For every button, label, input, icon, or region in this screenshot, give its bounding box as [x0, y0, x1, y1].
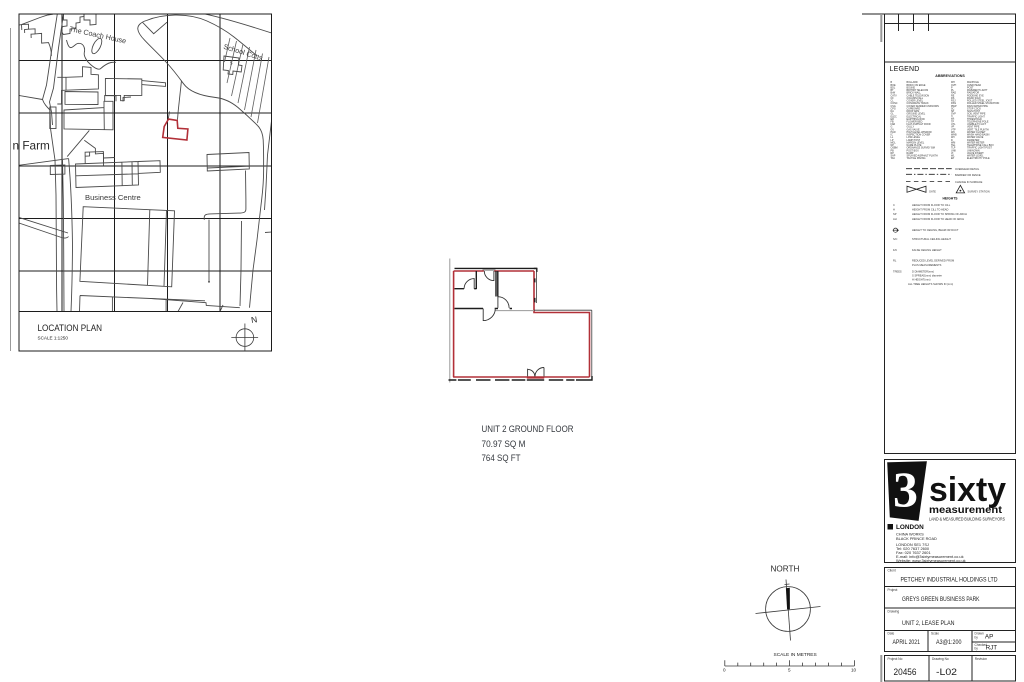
svg-text:GREYS GREEN BUSINESS PARK: GREYS GREEN BUSINESS PARK	[902, 596, 980, 603]
svg-text:by: by	[975, 635, 979, 639]
svg-text:HEIGHT FROM FLOOR TO SPRING OF: HEIGHT FROM FLOOR TO SPRING OF ARCH	[912, 212, 967, 216]
svg-text:C: C	[893, 203, 895, 207]
svg-text:BLACK PRINCE ROAD: BLACK PRINCE ROAD	[896, 536, 937, 541]
svg-text:ALL TREE HEIGHTS SHOWN IN (mm): ALL TREE HEIGHTS SHOWN IN (mm)	[908, 282, 953, 286]
svg-text:Drawing No: Drawing No	[932, 657, 949, 661]
svg-text:TACTILE PAVING: TACTILE PAVING	[907, 157, 926, 160]
svg-text:LEGEND: LEGEND	[890, 66, 920, 73]
svg-text:A3@1:200: A3@1:200	[936, 639, 962, 646]
svg-text:by: by	[975, 646, 979, 650]
svg-text:Drawing: Drawing	[888, 610, 900, 614]
svg-text:STRUCTURAL CEILING HEIGHT: STRUCTURAL CEILING HEIGHT	[912, 237, 951, 241]
svg-text:NORTH: NORTH	[771, 565, 800, 574]
svg-text:SCALE 1:1250: SCALE 1:1250	[38, 336, 69, 341]
svg-text:HEIGHTS: HEIGHTS	[942, 196, 958, 200]
svg-text:measurement: measurement	[929, 505, 1003, 516]
svg-text:LONDON: LONDON	[896, 524, 924, 531]
svg-text:Project No: Project No	[888, 657, 903, 661]
svg-text:5: 5	[788, 668, 791, 673]
svg-text:PLUS MEASUREMENTS: PLUS MEASUREMENTS	[912, 263, 942, 267]
svg-text:3: 3	[893, 461, 918, 517]
svg-text:Scale: Scale	[931, 632, 939, 636]
svg-text:20456: 20456	[894, 667, 917, 678]
svg-text:TAC: TAC	[891, 157, 896, 160]
svg-text:RJT: RJT	[986, 645, 998, 652]
svg-text:LAND & MEASURED BUILDING SURVE: LAND & MEASURED BUILDING SURVEYORS	[929, 516, 1005, 521]
svg-text:D DIAMETER(mm): D DIAMETER(mm)	[912, 269, 934, 273]
svg-text:HEIGHT FROM FLOOR TO CILL: HEIGHT FROM FLOOR TO CILL	[912, 203, 951, 207]
svg-text:BARRIER OR FENCE: BARRIER OR FENCE	[955, 173, 981, 177]
svg-text:764 SQ FT: 764 SQ FT	[482, 453, 521, 464]
svg-text:ELECTRICITY POLE: ELECTRICITY POLE	[967, 157, 990, 160]
svg-text:Website: www.3sixtymeasurement: Website: www.3sixtymeasurement.co.uk	[896, 558, 966, 563]
svg-text:LOCATION PLAN: LOCATION PLAN	[38, 323, 103, 334]
svg-text:ABBREVIATIONS: ABBREVIATIONS	[935, 74, 965, 78]
svg-text:PETCHEY INDUSTRIAL HOLDINGS LT: PETCHEY INDUSTRIAL HOLDINGS LTD	[901, 576, 998, 583]
svg-text:-L02: -L02	[936, 667, 957, 678]
svg-text:SP: SP	[893, 212, 897, 216]
svg-text:F/C: F/C	[893, 248, 897, 252]
svg-text:AH: AH	[893, 217, 897, 221]
svg-text:AP: AP	[985, 634, 993, 641]
svg-text:HEIGHT FROM CILL TO HEAD: HEIGHT FROM CILL TO HEAD	[912, 208, 948, 212]
svg-text:Client: Client	[888, 569, 896, 573]
svg-text:CHANGE IN SURFACE: CHANGE IN SURFACE	[955, 180, 983, 184]
svg-text:Date: Date	[888, 632, 895, 636]
svg-text:H: H	[893, 208, 895, 212]
svg-text:REDUCED LEVEL DERIVED FROM: REDUCED LEVEL DERIVED FROM	[912, 258, 954, 262]
svg-text:Revision: Revision	[975, 657, 987, 661]
svg-text:EP: EP	[951, 157, 955, 160]
svg-text:0: 0	[723, 668, 726, 673]
svg-text:HEIGHT FROM FLOOR TO HEAD OF A: HEIGHT FROM FLOOR TO HEAD OF ARCH	[912, 217, 964, 221]
svg-text:SURVEY STATION: SURVEY STATION	[968, 190, 990, 194]
svg-text:TREES: TREES	[893, 269, 902, 273]
svg-text:FALSE CEILING HEIGHT: FALSE CEILING HEIGHT	[912, 248, 942, 252]
svg-text:RL: RL	[893, 258, 897, 262]
svg-text:GATE: GATE	[929, 190, 936, 194]
svg-text:S/C: S/C	[893, 237, 897, 241]
svg-text:SCALE IN METRES: SCALE IN METRES	[774, 652, 817, 658]
svg-text:Project: Project	[888, 588, 898, 592]
svg-text:UNIT 2 GROUND FLOOR: UNIT 2 GROUND FLOOR	[482, 424, 574, 435]
svg-text:APRIL 2021: APRIL 2021	[893, 639, 921, 646]
svg-text:n Farm: n Farm	[13, 139, 51, 153]
svg-text:10: 10	[851, 668, 857, 673]
svg-text:70.97 SQ M: 70.97 SQ M	[482, 439, 526, 450]
svg-text:H HEIGHT(mm): H HEIGHT(mm)	[912, 278, 931, 282]
svg-text:Business Centre: Business Centre	[85, 193, 141, 202]
svg-text:UNIT 2, LEASE PLAN: UNIT 2, LEASE PLAN	[902, 620, 955, 627]
svg-text:OVERHEAD DETAIL: OVERHEAD DETAIL	[955, 167, 980, 171]
svg-text:S SPREAD(mm) diameter: S SPREAD(mm) diameter	[912, 273, 942, 277]
svg-text:HEIGHT TO CEILING, BEAM OR DUC: HEIGHT TO CEILING, BEAM OR DUCT	[912, 228, 959, 232]
svg-text:sixty: sixty	[929, 471, 1006, 509]
